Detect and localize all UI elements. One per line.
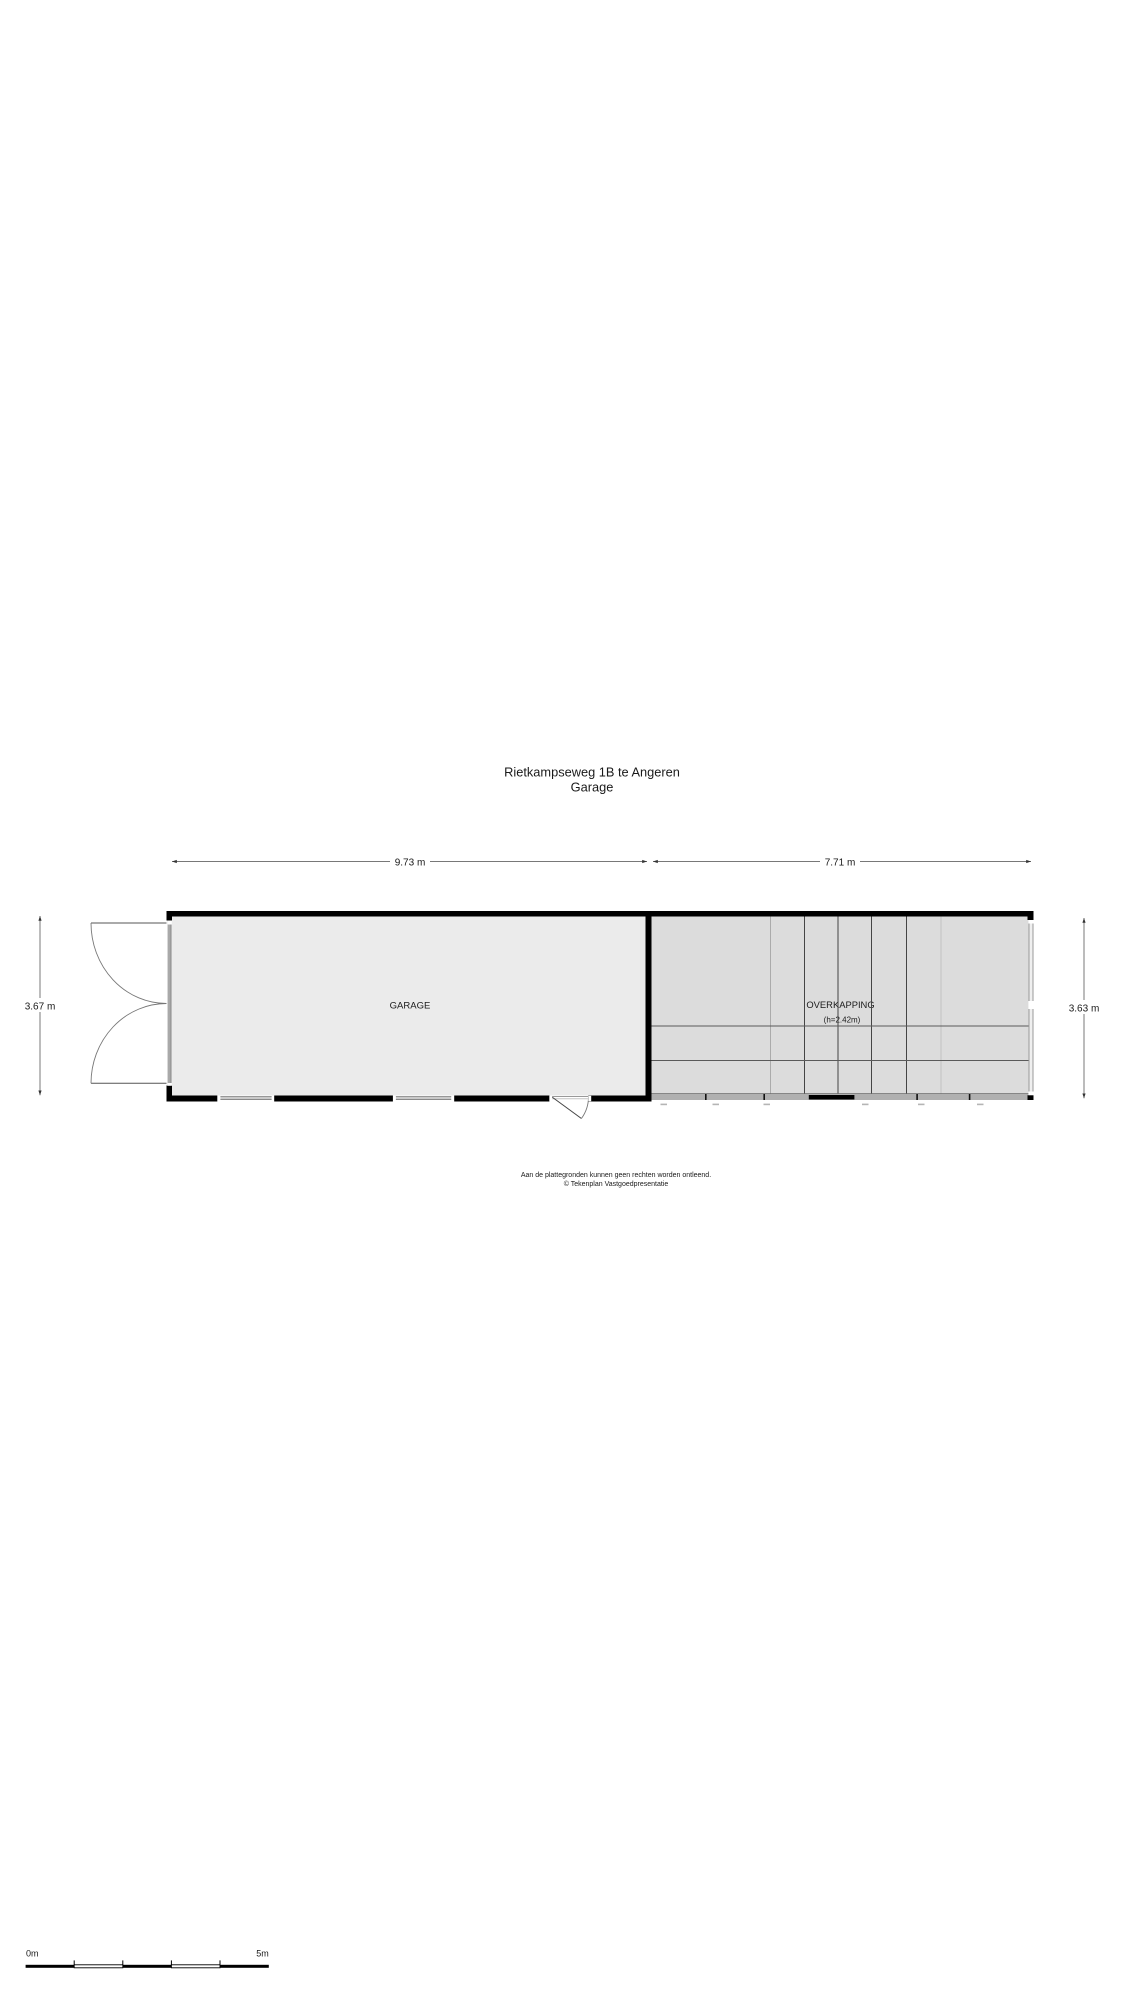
svg-text:Aan de plattegronden kunnen ge: Aan de plattegronden kunnen geen rechten… xyxy=(521,1172,711,1179)
svg-text:© Tekenplan Vastgoedpresentati: © Tekenplan Vastgoedpresentatie xyxy=(564,1180,669,1188)
svg-text:9.73 m: 9.73 m xyxy=(395,857,426,868)
svg-text:Garage: Garage xyxy=(571,780,614,795)
svg-text:GARAGE: GARAGE xyxy=(390,1001,431,1012)
svg-text:3.63 m: 3.63 m xyxy=(1069,1004,1100,1015)
svg-text:(h=2.42m): (h=2.42m) xyxy=(824,1015,861,1024)
svg-text:5m: 5m xyxy=(256,1949,269,1959)
svg-text:3.67 m: 3.67 m xyxy=(25,1002,56,1013)
svg-text:7.71 m: 7.71 m xyxy=(825,857,856,868)
svg-text:0m: 0m xyxy=(26,1949,39,1959)
svg-text:Rietkampseweg 1B te Angeren: Rietkampseweg 1B te Angeren xyxy=(504,765,680,780)
svg-text:OVERKAPPING: OVERKAPPING xyxy=(806,999,874,1010)
